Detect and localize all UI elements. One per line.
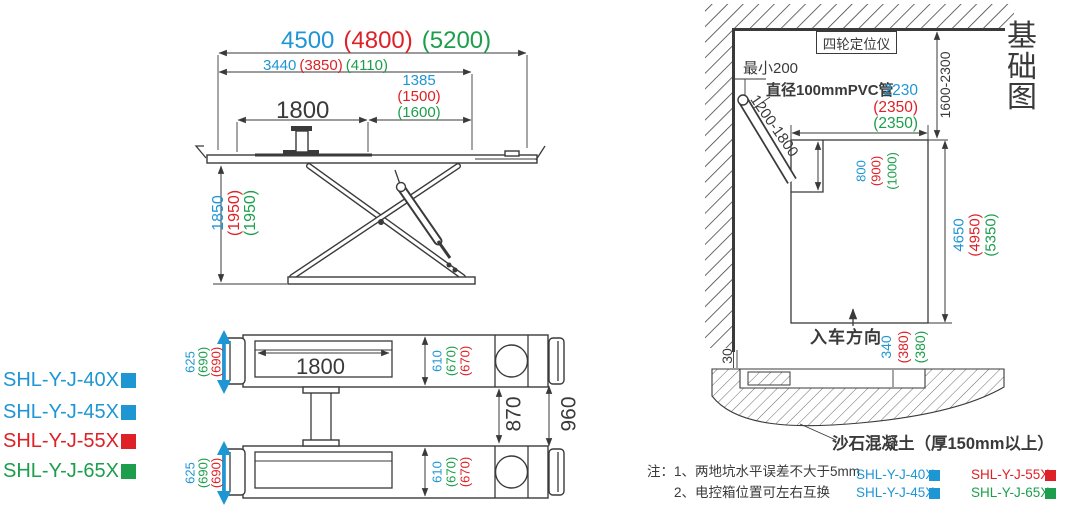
dim-platform-span: 1800: [276, 99, 329, 123]
dim-outer-gap: 960: [559, 396, 580, 431]
dim-frame-length: 3440 (3850) (4110): [263, 58, 388, 73]
dim-pit-width-65: (2350): [873, 116, 918, 132]
dim-front-length: 1385 (1500) (1600): [393, 73, 445, 120]
legend-left-swatch-45x: [121, 405, 136, 420]
dim-front-65: (1600): [397, 105, 440, 120]
dim-outer-width-top-55: (690): [210, 347, 223, 377]
drive-direction-label: 入车方向: [810, 329, 882, 346]
legend-right-swatch-55x: [1045, 470, 1056, 481]
dim-total-40: 4500: [281, 29, 334, 53]
dim-runway-width-top-40: 610: [431, 350, 444, 372]
dim-frame-65: (4110): [346, 58, 388, 73]
legend-right-swatch-40x: [929, 470, 940, 481]
installation-diagram: 4500 (4800) (5200) 3440 (3850) (4110) 18…: [0, 0, 1065, 519]
dim-pit-depth-55: (380): [896, 331, 910, 364]
dim-total-length: 4500 (4800) (5200): [281, 29, 491, 53]
legend-right-label-55x: SHL-Y-J-55X: [971, 468, 1049, 482]
min-clearance-label: 最小200: [743, 61, 798, 76]
dim-pit-length-40: 4650: [952, 218, 967, 251]
dim-notch-40: 800: [855, 160, 868, 182]
legend-right-label-45x: SHL-Y-J-45X: [856, 486, 934, 500]
legend-right-label-65x: SHL-Y-J-65X: [971, 486, 1049, 500]
legend-left-swatch-55x: [121, 434, 136, 449]
legend-left-label-55x: SHL-Y-J-55X: [3, 431, 119, 451]
dim-pit-width-55: (2350): [873, 100, 918, 116]
dim-height-55: (1950): [227, 190, 243, 236]
side-view-linework: [196, 53, 545, 284]
legend-right-swatch-65x: [1045, 488, 1056, 499]
wheel-aligner-label: 四轮定位仪: [823, 33, 891, 53]
dim-front-40: 1385: [402, 73, 435, 88]
concrete-label: 沙石混凝土（厚150mm以上）: [832, 436, 1054, 453]
dim-pit-depth-65: (380): [913, 331, 927, 364]
dim-total-65: (5200): [422, 29, 491, 53]
dim-runway-width-top-65: (670): [445, 346, 458, 376]
dim-runway-width-bot-40: 610: [431, 461, 444, 483]
dim-frame-55: (3850): [299, 58, 342, 73]
note-line-1: 注：1、两地坑水平误差不大于5mm: [647, 465, 860, 479]
dim-height-40: 1850: [211, 195, 227, 231]
legend-left-swatch-40x: [121, 373, 136, 388]
dim-runway-length: 1800: [296, 356, 345, 378]
dim-pit-length-55: (4950): [968, 213, 983, 256]
legend-left-swatch-65x: [121, 464, 136, 479]
dim-wall-to-pit: 1600-2300: [938, 52, 952, 119]
dim-runway-width-bot-65: (670): [445, 457, 458, 487]
dim-outer-width-bot-55: (690): [210, 458, 223, 488]
dim-front-55: (1500): [397, 89, 440, 104]
dim-runway-width-top-55: (670): [459, 346, 472, 376]
wheel-aligner-box: 四轮定位仪: [816, 31, 897, 54]
legend-left-label-65x: SHL-Y-J-65X: [3, 461, 119, 481]
dim-inner-gap: 870: [504, 396, 525, 431]
dim-pit-width-40: 2230: [884, 83, 918, 99]
dim-height-65: (1950): [243, 190, 259, 236]
dim-pit-width: 2230 (2350) (2350): [870, 83, 918, 132]
dim-frame-40: 3440: [263, 58, 296, 73]
dim-total-55: (4800): [343, 29, 412, 53]
dim-edge-offset: 30: [720, 348, 734, 364]
note-line-2: 2、电控箱位置可左右互换: [674, 486, 830, 500]
legend-right-label-40x: SHL-Y-J-40X: [856, 468, 934, 482]
foundation-title: 基础图: [1007, 22, 1040, 114]
dim-runway-width-bot-55: (670): [459, 457, 472, 487]
legend-left-label-45x: SHL-Y-J-45X: [3, 402, 119, 422]
dim-notch-55: (900): [870, 156, 883, 186]
legend-right-swatch-45x: [929, 488, 940, 499]
dim-pit-length-65: (5350): [984, 213, 999, 256]
legend-left-label-40x: SHL-Y-J-40X: [3, 370, 119, 390]
dim-notch-65: (1000): [886, 152, 899, 190]
